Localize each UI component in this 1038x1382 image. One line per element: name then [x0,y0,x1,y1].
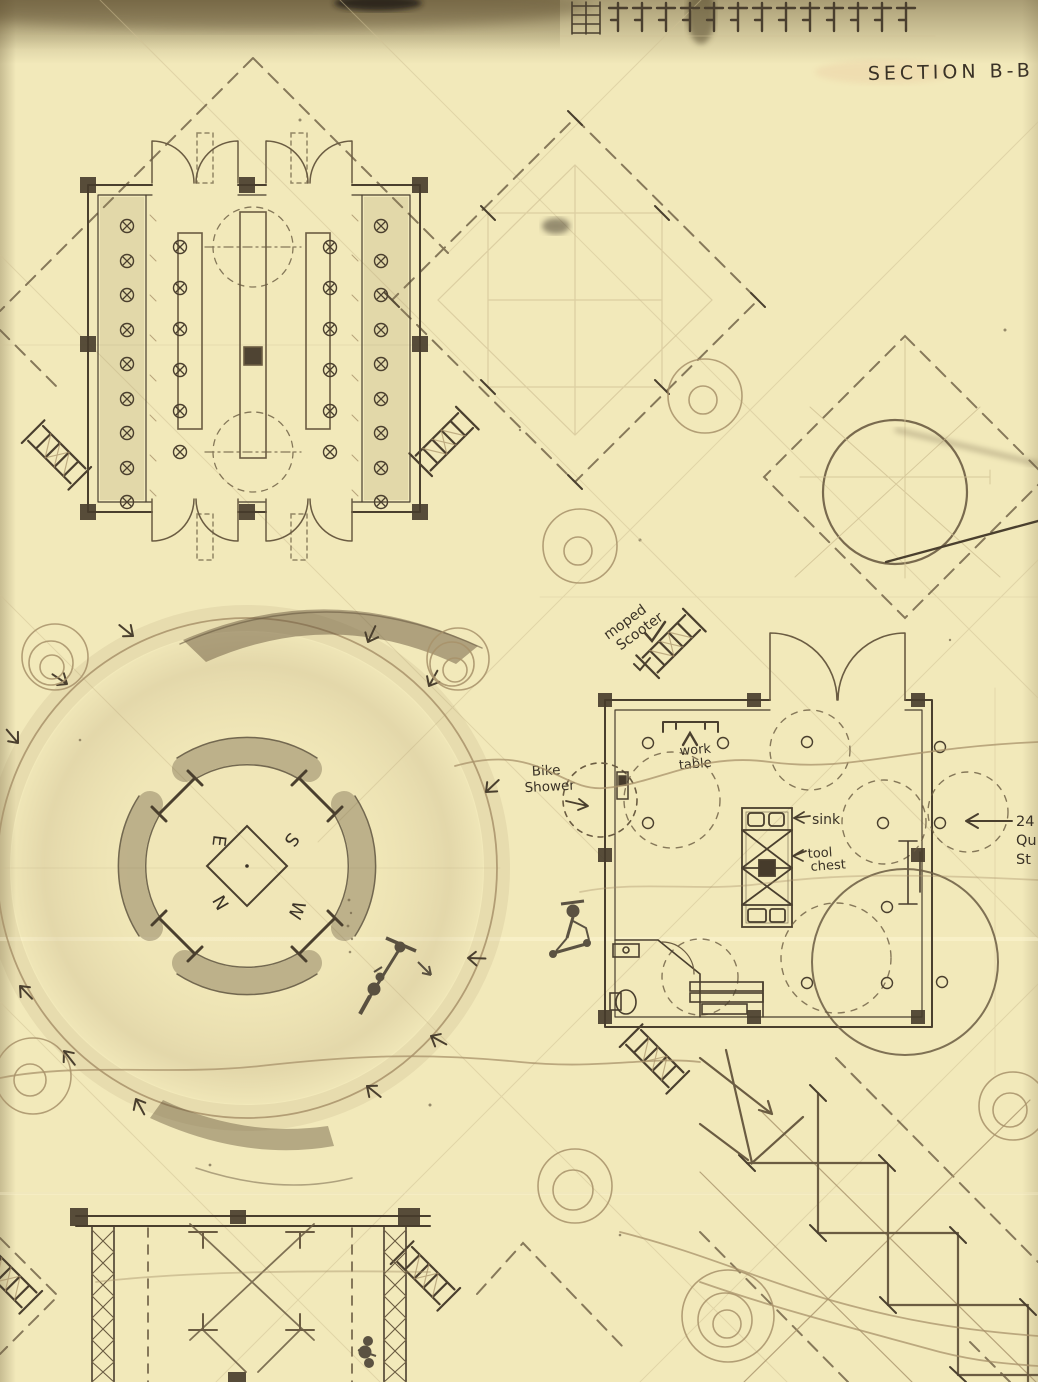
bike-shower-circle [563,763,637,837]
tangent-line [886,521,1038,562]
ladder-connector [620,1024,689,1093]
tree-symbol [682,1270,774,1362]
sink-tool-chest-unit [742,808,792,927]
barn-truss-left [92,1226,114,1382]
annotation-tool-chest: tool chest [793,844,846,875]
sink-label: sink [812,812,841,828]
scooter-rider-figure [550,901,591,958]
floor-dots [643,737,948,989]
hall-band-left [100,197,144,500]
annotation-section-label: SECTION B-B [868,60,1034,85]
tool-chest-label-line2: chest [810,857,846,874]
right-edge-label-line3: St [1016,852,1031,868]
annotation-bike-shower: Bike Shower [523,762,588,810]
step-shelves [690,982,763,1014]
workshop-posts [598,693,925,1024]
hall-band-right [364,197,408,500]
ladder-connector [22,420,91,489]
bathroom [610,940,763,1017]
tree-symbol [543,509,617,583]
barn-cross-bracing [189,1224,314,1372]
sink-arrow [794,812,810,823]
hall-plan [80,133,428,560]
drawing-sheet: SECTION B-B [0,0,1038,1382]
bath-basin [613,944,639,957]
barn-dashed-lines [148,1228,352,1382]
annotation-sink: sink [794,812,841,828]
barn-truss-right [384,1226,406,1382]
tree-symbol [22,624,88,690]
hall-tables [178,212,330,458]
workshop-plan [563,633,1008,1055]
right-edge-label-line2: Qu [1016,833,1037,849]
work-table-label-line2: table [678,756,712,774]
bike-shower-arrow [566,799,588,810]
circle-construction [795,340,1038,578]
dark-chevrons [700,1050,803,1163]
tool-chest-arrow [793,850,806,861]
plaza: E S N W [0,609,503,1185]
right-edge-label-line1: 24 [1016,814,1034,830]
tree-symbol [668,359,742,433]
tree-symbol [538,1149,612,1223]
annotation-right-edge: 24 Qu St [966,814,1037,868]
